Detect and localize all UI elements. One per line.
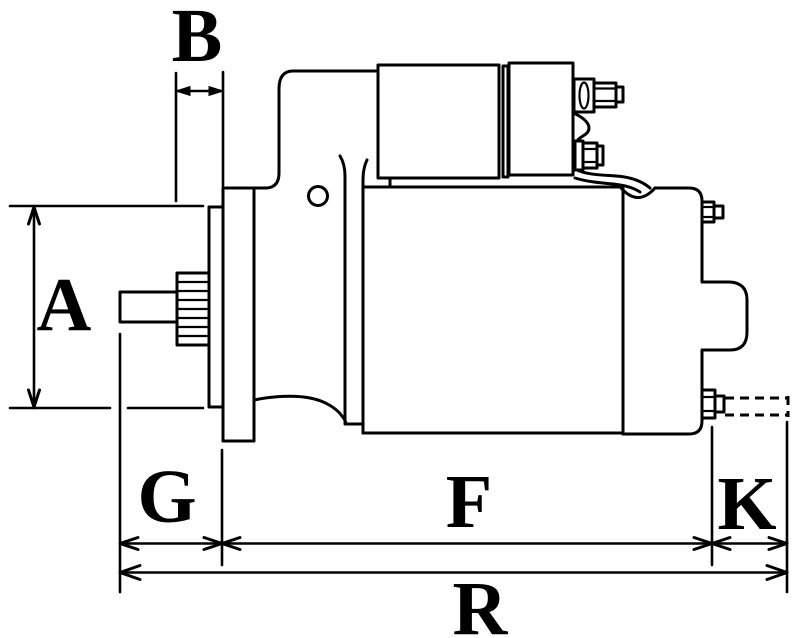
solenoid: [378, 63, 589, 178]
pinion-gear: [177, 273, 210, 345]
solenoid-terminal-lower: [575, 141, 603, 170]
terminal-nut: [583, 143, 597, 168]
dimension-k: K: [712, 462, 787, 550]
bearing-boss: [702, 282, 747, 350]
bolt-stub: [714, 206, 723, 218]
starter-motor-diagram: B A G: [0, 0, 800, 638]
bolt-head: [702, 390, 715, 418]
solenoid-terminal-upper: [574, 79, 623, 112]
dimension-label-r: R: [453, 567, 509, 638]
pinion-gear-teeth: [177, 282, 210, 336]
dimension-label-k: K: [717, 462, 776, 546]
solenoid-joint-flange: [503, 66, 508, 177]
bolt-head: [702, 202, 714, 222]
bolt-stub: [715, 396, 724, 412]
terminal-stud-end: [597, 146, 603, 165]
drawing-canvas: B A G: [0, 0, 800, 638]
dimension-label-g: G: [137, 455, 196, 539]
terminal-stud-end: [616, 87, 623, 102]
mounting-flange: [223, 188, 254, 441]
dimension-label-f: F: [446, 460, 492, 544]
dimension-label-a: A: [37, 263, 92, 347]
terminal-insulator-washer: [574, 79, 594, 112]
solenoid-cap: [509, 63, 573, 175]
rear-bolt-top: [702, 202, 723, 222]
terminal-nut: [594, 83, 616, 107]
dimension-label-b: B: [172, 0, 223, 78]
solenoid-body: [378, 65, 499, 178]
spacer-ring: [209, 207, 223, 407]
